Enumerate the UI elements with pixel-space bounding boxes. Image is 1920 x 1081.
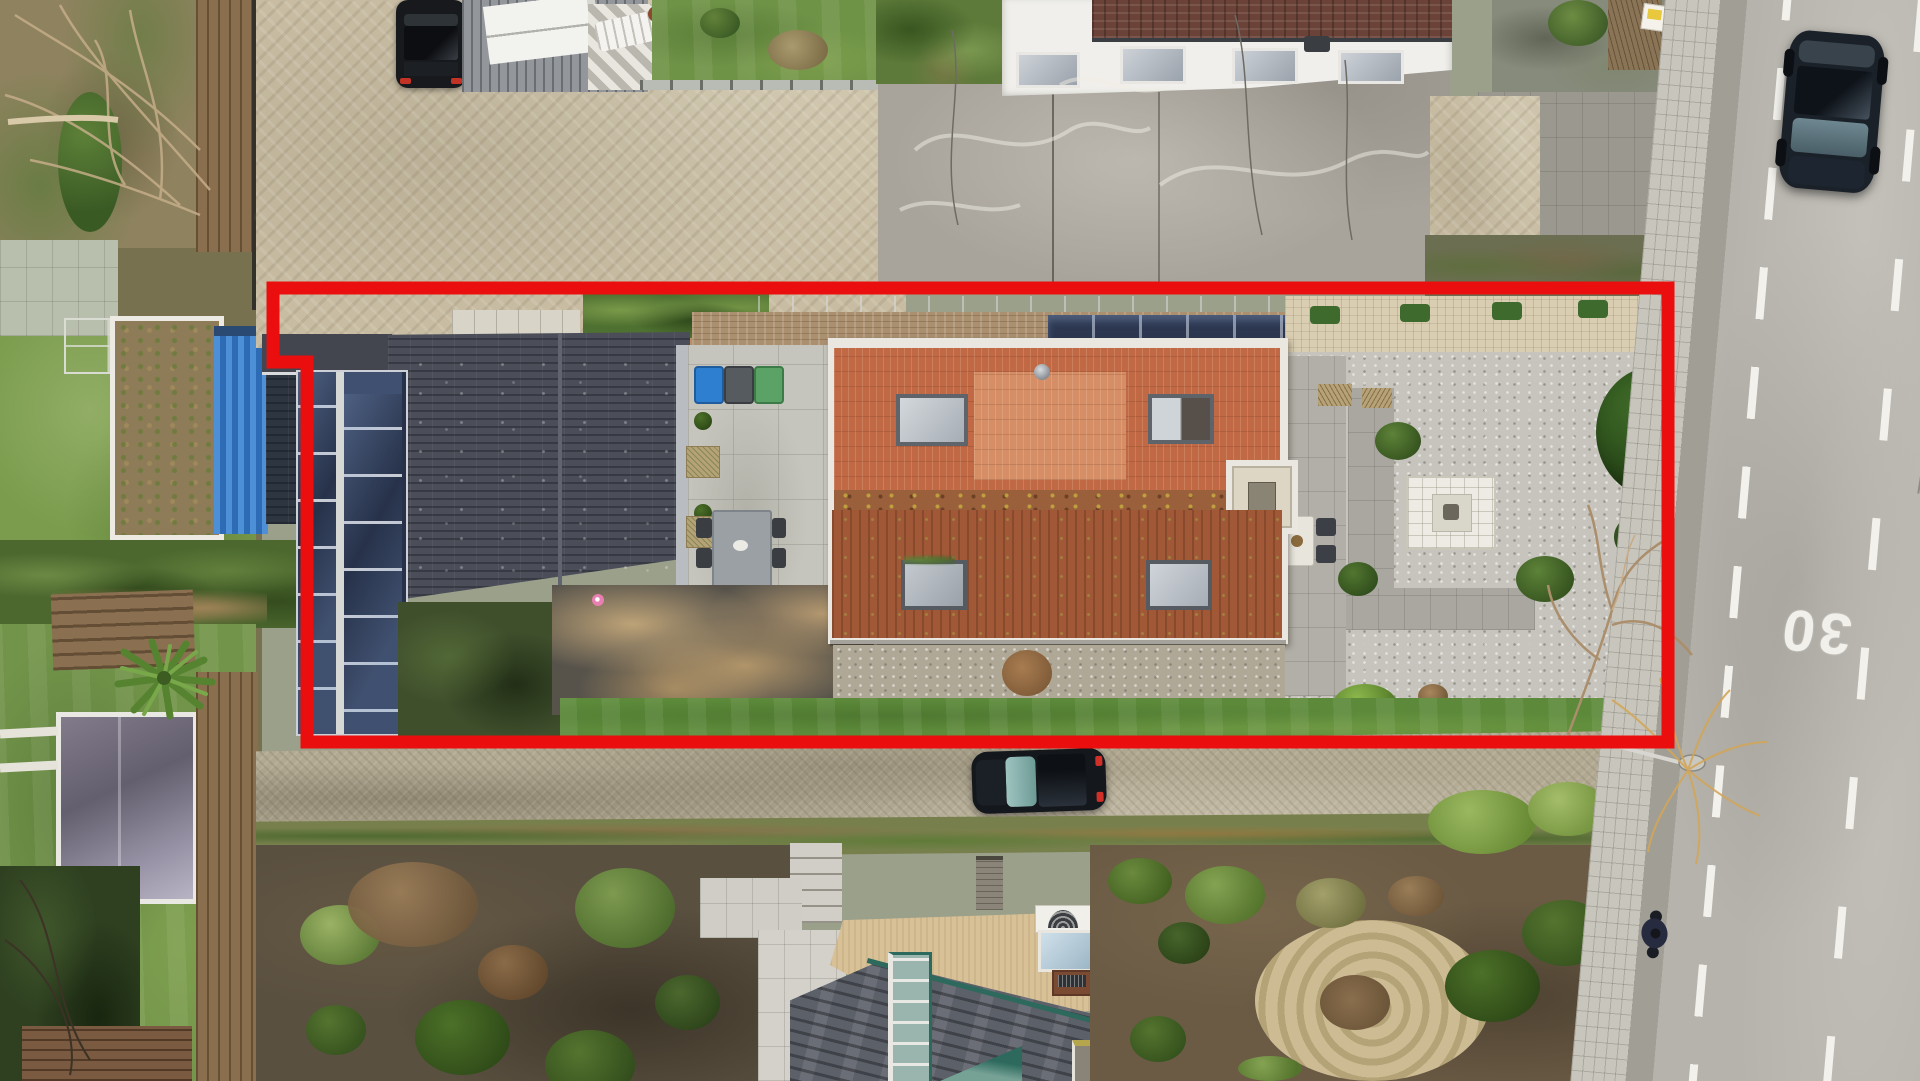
brown-gravel-circle <box>1002 650 1052 696</box>
br-lightgreen-1 <box>1428 790 1536 854</box>
waste-bin-green <box>754 366 784 404</box>
sign-yellow-patch <box>1647 9 1662 21</box>
patio-planter-1 <box>686 446 720 478</box>
driving-car-roof <box>1793 66 1873 120</box>
right-garden-bush-3 <box>1516 556 1574 602</box>
bottom-house-chimney-white <box>1035 905 1091 933</box>
house-roof-repaired-patch <box>974 372 1126 480</box>
solar-panel-array <box>296 370 408 736</box>
bl-bush-3 <box>306 1005 366 1055</box>
brown-shed-roof-bottom-left <box>22 1026 192 1081</box>
green-bush-topright <box>1548 0 1608 46</box>
br-bush-6 <box>1445 950 1540 1022</box>
bl-bush-7 <box>655 975 720 1030</box>
cyclist <box>1639 909 1669 961</box>
conifer-bush <box>58 92 122 232</box>
right-garden-bush-1 <box>1375 422 1421 460</box>
patio-chair-2 <box>696 548 712 568</box>
utility-line-1 <box>1052 88 1054 286</box>
br-bush-1 <box>1108 858 1172 904</box>
twig-planter-2 <box>1362 388 1392 408</box>
street-car-taillight-top <box>1095 756 1102 766</box>
wood-fence-top-left <box>196 0 258 252</box>
scrub-hedge-strip <box>1425 235 1670 297</box>
roof-skylight-2 <box>1232 48 1298 84</box>
box-plant-4 <box>1578 300 1608 318</box>
garage-roof-extension <box>262 334 392 375</box>
blue-tarp-structure <box>214 326 268 534</box>
car-taillight-left <box>400 78 411 84</box>
bl-twiggy-shrub <box>348 862 478 947</box>
parked-car-top <box>396 0 466 88</box>
dark-vegetation-patch <box>398 602 566 740</box>
roof-skylight-small <box>1016 52 1080 88</box>
garage-roof-ridge <box>558 334 562 592</box>
house-skylight-lower-right <box>1146 560 1212 610</box>
pink-pinwheel <box>592 594 604 606</box>
speed-limit-30-marking: 30 <box>1756 586 1875 665</box>
car-windshield <box>404 14 458 26</box>
garage-roof-speckles <box>400 350 680 580</box>
street-car-roof <box>1037 753 1087 807</box>
patio-chair-1 <box>696 518 712 538</box>
driving-car-wheel-3 <box>1775 138 1787 167</box>
driving-car <box>1777 29 1886 195</box>
garden-brick-tower <box>976 856 1003 910</box>
house-skylight-upper-left <box>896 394 968 446</box>
waste-bin-grey <box>724 366 754 404</box>
path-plaza <box>700 878 802 938</box>
garden-chair-2 <box>1316 545 1336 563</box>
driving-car-rear-window <box>1798 40 1876 69</box>
table-white-object <box>733 540 748 551</box>
spiral-center-shrub <box>1320 975 1390 1030</box>
gravel-strip-south <box>833 645 1285 699</box>
driving-car-wheel-1 <box>1783 48 1795 77</box>
garden-fence-line <box>640 80 908 90</box>
house-lower-roof-slope <box>832 510 1282 638</box>
br-bush-5 <box>1388 876 1444 916</box>
waste-bin-blue <box>694 366 724 404</box>
patio-table <box>712 510 772 588</box>
car-taillight-right <box>451 78 462 84</box>
street-parked-car <box>971 748 1107 815</box>
utility-line-2 <box>1158 92 1160 286</box>
box-plant-2 <box>1400 304 1430 322</box>
lawn-bush <box>700 8 740 38</box>
box-plant-3 <box>1492 302 1522 320</box>
chimney-arc-grille <box>1048 910 1078 928</box>
street-car-taillight-bottom <box>1096 792 1103 802</box>
table-bowl <box>1291 535 1303 547</box>
solar-column-right <box>344 372 402 734</box>
roof-skylight-1 <box>1120 46 1186 84</box>
br-bush-4 <box>1296 878 1366 928</box>
house-ridge <box>834 490 1236 510</box>
solar-column-left <box>298 372 336 734</box>
aerial-photo-scene: 30 <box>0 0 1920 1081</box>
street-car-hood <box>975 759 1007 806</box>
patio-chair-3 <box>772 518 786 538</box>
house-skylight-lower-left <box>901 560 967 610</box>
car-rear-window <box>404 62 458 76</box>
wood-fence-lower-left <box>196 672 258 1081</box>
green-strip-top <box>876 0 1012 84</box>
patio-chair-4 <box>772 548 786 568</box>
dark-tile-roof-band <box>1092 0 1452 42</box>
br-bush-3 <box>1158 922 1210 964</box>
garden-ornament <box>1406 476 1496 550</box>
car-roof <box>404 26 458 60</box>
driving-car-hood <box>1787 155 1865 190</box>
bl-bush-4 <box>575 868 675 948</box>
bl-bush-2 <box>415 1000 510 1075</box>
garden-chair-1 <box>1316 518 1336 536</box>
br-bush-2 <box>1185 866 1265 924</box>
chimney-cap <box>1248 482 1276 512</box>
roof-vent-dark <box>1304 36 1330 52</box>
vent-grille <box>1058 975 1086 987</box>
sedum-roof-shed <box>110 316 224 540</box>
house-skylight-upper-right <box>1148 394 1214 444</box>
driving-car-windshield <box>1790 117 1869 157</box>
street-car-windshield <box>1005 756 1037 807</box>
ornament-core <box>1443 504 1459 520</box>
right-garden-bush-2 <box>1338 562 1378 596</box>
conservatory-mullion <box>118 717 121 889</box>
roof-vent <box>1034 364 1050 380</box>
twig-shrub <box>768 30 828 70</box>
wood-pallets <box>51 590 196 671</box>
patio-bush-1 <box>694 412 712 430</box>
bottom-house-skylight-box <box>1038 930 1098 972</box>
br-bush-10 <box>1238 1056 1302 1081</box>
skylight-greenery <box>903 554 955 566</box>
roof-skylight-3 <box>1338 50 1404 84</box>
solar-rail <box>336 372 344 734</box>
bl-bush-5 <box>478 945 548 1000</box>
veranda-glass <box>888 952 932 1081</box>
twig-planter-1 <box>1318 384 1352 406</box>
br-bush-9 <box>1130 1016 1186 1062</box>
cream-terrace-north <box>1285 296 1669 356</box>
box-plant-1 <box>1310 306 1340 324</box>
